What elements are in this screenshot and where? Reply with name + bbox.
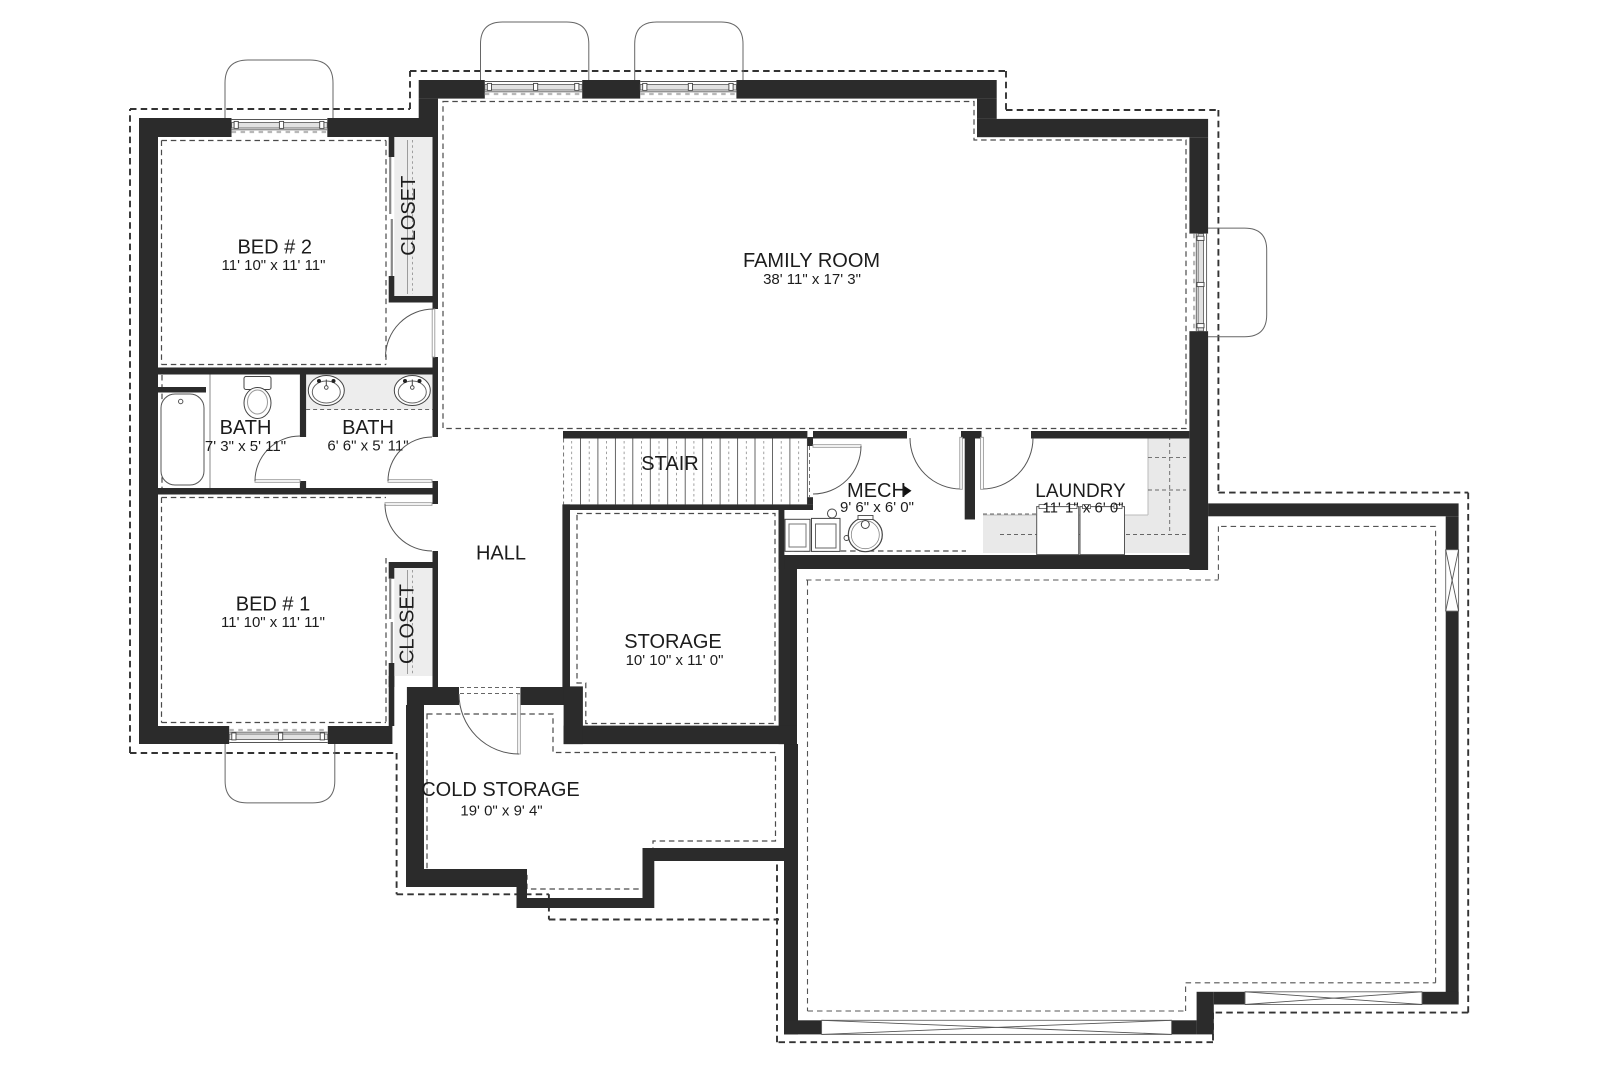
svg-text:CLOSET: CLOSET — [397, 584, 419, 664]
svg-text:STAIR: STAIR — [641, 453, 698, 475]
svg-text:38' 11" x 17' 3": 38' 11" x 17' 3" — [763, 271, 861, 288]
svg-text:STORAGE: STORAGE — [624, 631, 721, 653]
svg-text:FAMILY ROOM: FAMILY ROOM — [743, 250, 880, 272]
svg-text:HALL: HALL — [476, 543, 526, 565]
svg-text:BATH: BATH — [220, 417, 272, 439]
svg-text:BED # 2: BED # 2 — [237, 237, 311, 259]
svg-text:COLD STORAGE: COLD STORAGE — [421, 779, 580, 801]
svg-text:11' 10" x 11' 11": 11' 10" x 11' 11" — [221, 614, 325, 631]
svg-text:9' 6" x 6' 0": 9' 6" x 6' 0" — [840, 499, 914, 516]
svg-text:19' 0" x 9' 4": 19' 0" x 9' 4" — [460, 803, 542, 820]
svg-text:CLOSET: CLOSET — [398, 176, 420, 256]
svg-text:BED # 1: BED # 1 — [236, 594, 310, 616]
svg-text:10' 10" x 11' 0": 10' 10" x 11' 0" — [626, 652, 724, 669]
svg-text:11' 10" x 11' 11": 11' 10" x 11' 11" — [222, 257, 326, 274]
svg-text:6' 6" x 5' 11": 6' 6" x 5' 11" — [327, 438, 408, 455]
svg-text:7' 3" x 5' 11": 7' 3" x 5' 11" — [205, 438, 286, 455]
svg-text:11' 1" x 6' 0": 11' 1" x 6' 0" — [1042, 500, 1123, 517]
svg-text:BATH: BATH — [342, 417, 394, 439]
